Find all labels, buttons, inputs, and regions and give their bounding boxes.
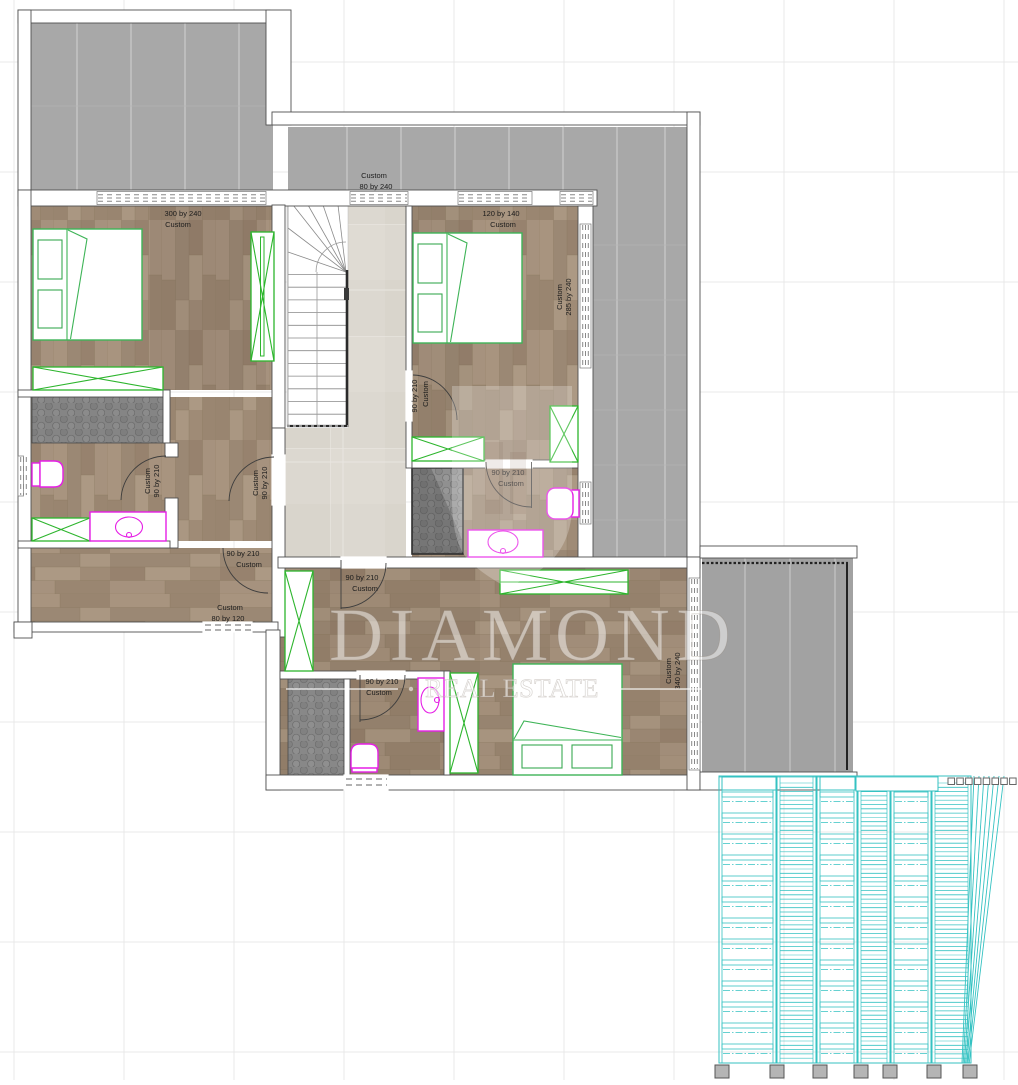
- svg-text:90 by 210: 90 by 210: [346, 573, 379, 582]
- svg-text:90 by 210: 90 by 210: [366, 677, 399, 686]
- svg-text:Custom: Custom: [236, 560, 262, 569]
- svg-text:Custom: Custom: [555, 284, 564, 310]
- svg-text:Custom: Custom: [490, 220, 516, 229]
- svg-text:90 by 210: 90 by 210: [152, 465, 161, 498]
- svg-text:Custom: Custom: [165, 220, 191, 229]
- svg-text:REAL ESTATE: REAL ESTATE: [425, 673, 599, 703]
- svg-text:90 by 210: 90 by 210: [410, 380, 419, 413]
- svg-text:Custom: Custom: [361, 171, 387, 180]
- svg-text:Custom: Custom: [352, 584, 378, 593]
- svg-text:Custom: Custom: [251, 470, 260, 496]
- svg-text:120 by 140: 120 by 140: [482, 209, 519, 218]
- svg-text:DIAMOND: DIAMOND: [329, 594, 737, 677]
- svg-text:Custom: Custom: [421, 381, 430, 407]
- svg-text:Custom: Custom: [143, 468, 152, 494]
- svg-text:80 by 240: 80 by 240: [360, 182, 393, 191]
- svg-text:300 by 240: 300 by 240: [164, 209, 201, 218]
- svg-text:90 by 210: 90 by 210: [260, 467, 269, 500]
- svg-text:285 by 240: 285 by 240: [564, 278, 573, 315]
- svg-text:90 by 210: 90 by 210: [227, 549, 260, 558]
- svg-text:80 by 120: 80 by 120: [212, 614, 245, 623]
- svg-text:Custom: Custom: [217, 603, 243, 612]
